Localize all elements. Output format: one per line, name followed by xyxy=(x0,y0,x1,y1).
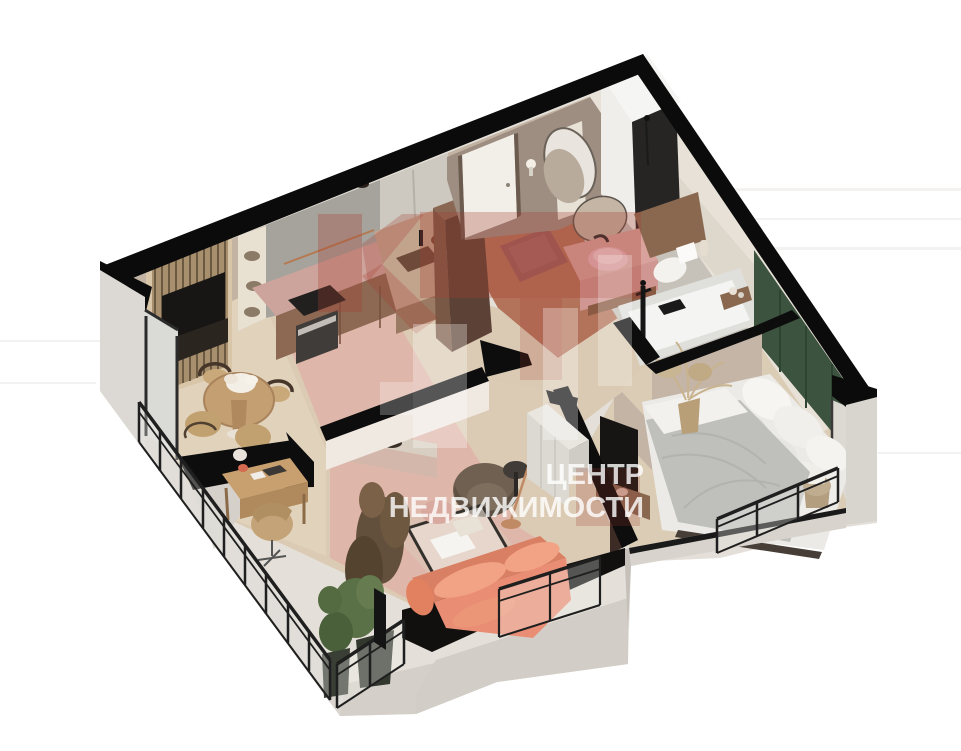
svg-text:НЕДВИЖИМОСТИ: НЕДВИЖИМОСТИ xyxy=(389,492,644,524)
svg-text:ЦЕНТР: ЦЕНТР xyxy=(545,459,644,491)
